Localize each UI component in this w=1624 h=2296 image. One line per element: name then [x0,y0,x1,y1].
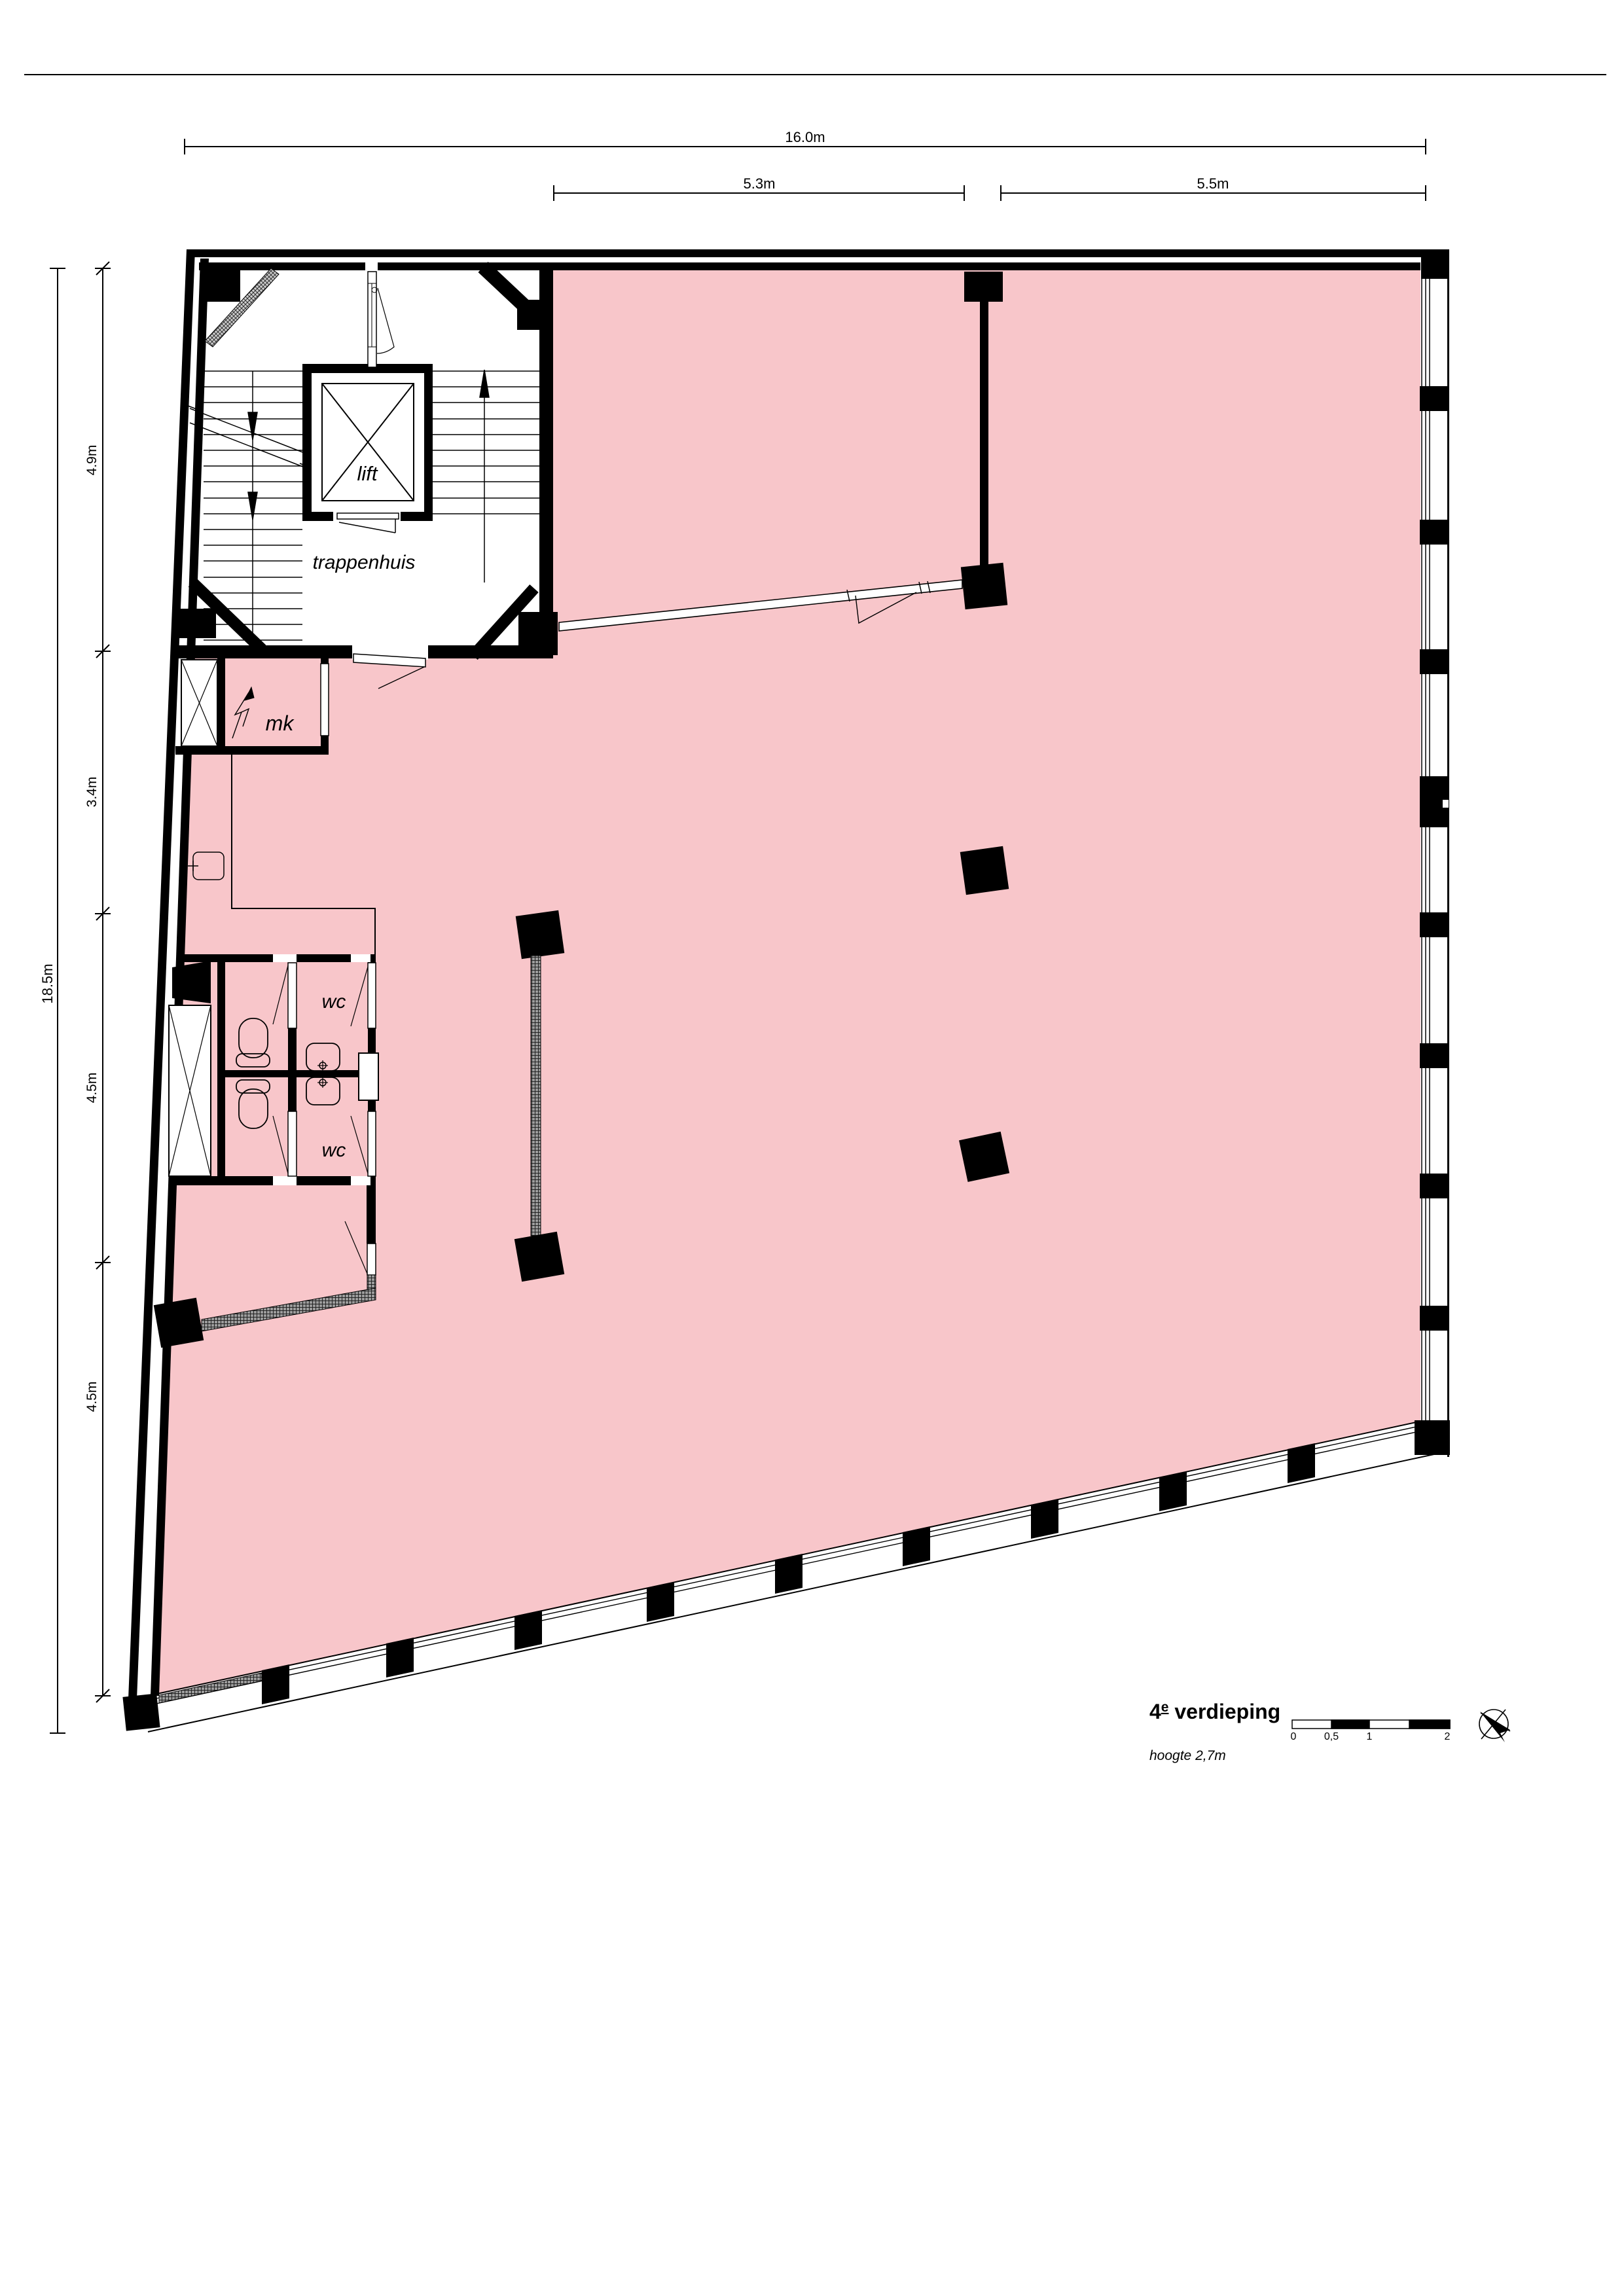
svg-text:0,5: 0,5 [1324,1731,1339,1742]
svg-text:16.0m: 16.0m [785,129,825,145]
svg-text:hoogte 2,7m: hoogte 2,7m [1149,1748,1226,1763]
svg-text:5.3m: 5.3m [744,175,776,192]
svg-text:wc: wc [322,991,346,1013]
svg-text:4.9m: 4.9m [84,445,99,476]
svg-text:0: 0 [1291,1731,1297,1742]
svg-text:2: 2 [1445,1731,1451,1742]
svg-text:mk: mk [266,711,295,735]
svg-text:3.4m: 3.4m [84,777,99,808]
svg-text:4.5m: 4.5m [84,1382,99,1412]
svg-text:trappenhuis: trappenhuis [313,552,416,573]
svg-text:1: 1 [1367,1731,1373,1742]
svg-text:5.5m: 5.5m [1197,175,1229,192]
svg-text:wc: wc [322,1139,346,1161]
svg-text:4e verdieping: 4e verdieping [1149,1700,1280,1723]
svg-text:18.5m: 18.5m [39,963,56,1003]
svg-text:4.5m: 4.5m [84,1073,99,1103]
svg-text:lift: lift [357,462,378,485]
